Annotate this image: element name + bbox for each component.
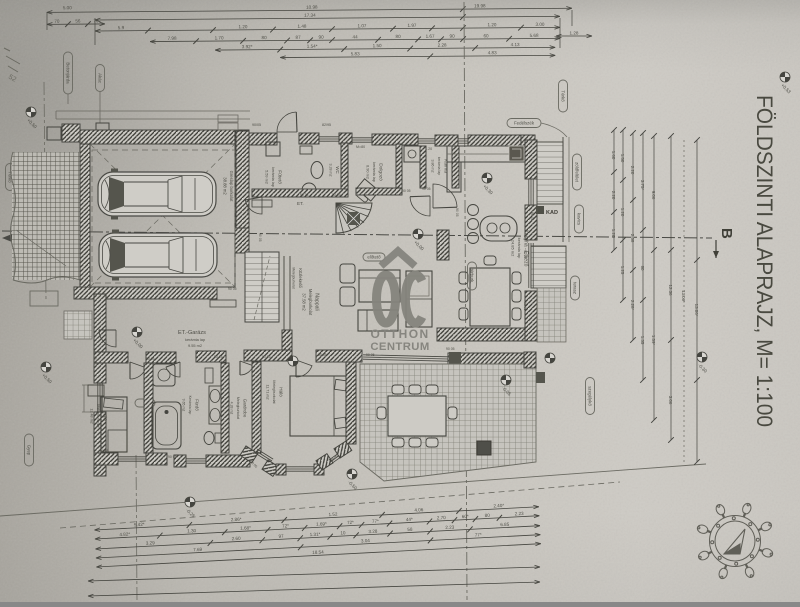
svg-text:72*: 72* xyxy=(347,520,354,525)
svg-text:1.20: 1.20 xyxy=(611,229,616,238)
svg-text:17.34: 17.34 xyxy=(304,13,316,18)
svg-text:ET.-Garázs: ET.-Garázs xyxy=(178,330,206,336)
svg-text:ET.: ET. xyxy=(297,201,304,206)
svg-text:2.28: 2.28 xyxy=(438,43,447,48)
svg-text:Kamra: Kamra xyxy=(443,159,448,173)
svg-text:1.50: 1.50 xyxy=(373,43,382,48)
svg-text:60: 60 xyxy=(483,33,489,38)
svg-text:terasz: terasz xyxy=(572,282,577,294)
svg-text:M=80: M=80 xyxy=(356,145,365,149)
svg-text:9.55 m2: 9.55 m2 xyxy=(188,343,202,348)
svg-text:90 05: 90 05 xyxy=(455,208,459,217)
svg-text:3.06: 3.06 xyxy=(668,396,673,405)
svg-text:3.92*: 3.92* xyxy=(242,44,253,49)
svg-text:90 05: 90 05 xyxy=(446,347,455,351)
svg-text:97: 97 xyxy=(278,534,284,539)
svg-text:2.60: 2.60 xyxy=(232,536,242,541)
svg-text:Melegburkolat: Melegburkolat xyxy=(308,289,313,316)
svg-text:90 05: 90 05 xyxy=(214,355,223,359)
svg-text:9.65 m2: 9.65 m2 xyxy=(181,399,185,412)
svg-text:90 05: 90 05 xyxy=(402,189,411,193)
svg-text:4.83: 4.83 xyxy=(488,50,497,55)
svg-text:87: 87 xyxy=(295,35,301,40)
svg-text:Betonjárda: Betonjárda xyxy=(65,62,70,84)
svg-text:kerámia lap: kerámia lap xyxy=(437,157,441,176)
svg-text:5.42*: 5.42* xyxy=(134,522,145,528)
svg-text:13.06*: 13.06* xyxy=(694,304,699,317)
svg-text:90: 90 xyxy=(449,34,455,39)
svg-text:10: 10 xyxy=(340,530,346,535)
svg-text:1.50: 1.50 xyxy=(620,154,625,163)
svg-text:1.52: 1.52 xyxy=(328,512,338,517)
svg-text:kerámia lap: kerámia lap xyxy=(185,337,205,342)
svg-text:5.83: 5.83 xyxy=(351,51,360,56)
svg-text:WC: WC xyxy=(335,166,340,173)
svg-text:3.86 m2: 3.86 m2 xyxy=(430,160,434,173)
svg-text:Dolgozó: Dolgozó xyxy=(377,163,383,181)
svg-text:Fürdő: Fürdő xyxy=(194,399,199,411)
svg-text:4.82*: 4.82* xyxy=(119,532,130,538)
svg-text:Akác: Akác xyxy=(97,73,102,84)
svg-text:7.98: 7.98 xyxy=(168,36,177,41)
svg-text:2.40*: 2.40* xyxy=(493,503,504,509)
svg-text:77*: 77* xyxy=(372,519,379,524)
svg-text:FÖLDSZINTI ALAPRAJZ, M= 1:100: FÖLDSZINTI ALAPRAJZ, M= 1:100 xyxy=(752,95,777,427)
svg-text:90: 90 xyxy=(318,35,324,40)
svg-text:18.54: 18.54 xyxy=(312,549,324,555)
svg-text:1.48: 1.48 xyxy=(297,24,306,29)
svg-text:90 05: 90 05 xyxy=(318,353,327,357)
svg-text:5.59 m2: 5.59 m2 xyxy=(264,170,268,184)
svg-text:zöldfelület: zöldfelület xyxy=(574,162,579,183)
svg-text:1.28: 1.28 xyxy=(570,30,579,35)
svg-text:90 05: 90 05 xyxy=(422,187,431,191)
svg-text:3.75*: 3.75* xyxy=(640,180,645,191)
svg-text:90 05: 90 05 xyxy=(100,449,109,453)
svg-text:12.36: 12.36 xyxy=(668,285,673,297)
svg-text:13.06*: 13.06* xyxy=(681,290,686,303)
svg-text:1.68*: 1.68* xyxy=(240,525,251,531)
svg-text:44*: 44* xyxy=(406,517,413,522)
svg-text:24.85 m2: 24.85 m2 xyxy=(510,240,515,257)
svg-text:3.04: 3.04 xyxy=(361,538,371,543)
svg-text:90 05: 90 05 xyxy=(523,302,527,311)
svg-text:3.29: 3.29 xyxy=(146,540,156,545)
svg-text:2.28*: 2.28* xyxy=(630,300,635,311)
svg-text:4.28 m2: 4.28 m2 xyxy=(229,402,233,415)
svg-text:Kerámia lap: Kerámia lap xyxy=(188,396,192,415)
svg-text:Térkő: Térkő xyxy=(560,90,565,102)
svg-text:44: 44 xyxy=(352,34,358,39)
svg-text:90 05: 90 05 xyxy=(228,287,237,291)
svg-text:3.28: 3.28 xyxy=(368,529,378,534)
svg-text:3.00: 3.00 xyxy=(535,22,544,27)
svg-text:előtető: előtető xyxy=(367,255,381,260)
svg-text:2.20: 2.20 xyxy=(611,191,616,200)
svg-text:1.54*: 1.54* xyxy=(307,44,318,49)
svg-text:Nappali: Nappali xyxy=(313,293,319,311)
svg-text:Konyha - Étkező: Konyha - Étkező xyxy=(522,230,529,267)
svg-text:6.85: 6.85 xyxy=(500,522,510,527)
svg-text:1.59*: 1.59* xyxy=(651,335,656,346)
svg-text:kerámia lap: kerámia lap xyxy=(517,238,522,259)
svg-text:1.20: 1.20 xyxy=(238,24,247,29)
svg-text:2.70: 2.70 xyxy=(437,515,447,520)
svg-text:4.06: 4.06 xyxy=(414,507,424,512)
svg-text:kavics: kavics xyxy=(576,213,581,226)
svg-text:10.98: 10.98 xyxy=(306,5,318,10)
svg-text:Háló: Háló xyxy=(102,411,107,421)
svg-text:70: 70 xyxy=(54,19,60,24)
svg-text:2.23: 2.23 xyxy=(445,525,455,530)
svg-text:1.20: 1.20 xyxy=(487,22,496,27)
svg-text:90 05: 90 05 xyxy=(530,212,534,221)
svg-text:9.06: 9.06 xyxy=(651,191,656,200)
svg-text:58: 58 xyxy=(407,527,413,532)
svg-text:2.38: 2.38 xyxy=(630,234,635,243)
svg-text:38.88 m2: 38.88 m2 xyxy=(222,177,227,195)
svg-text:37.58 m2: 37.58 m2 xyxy=(301,293,306,311)
svg-text:60*: 60* xyxy=(462,514,469,519)
svg-text:90/05: 90/05 xyxy=(252,123,261,127)
svg-text:5.68: 5.68 xyxy=(530,33,539,38)
svg-text:5.9: 5.9 xyxy=(118,25,125,30)
svg-text:térburk.: térburk. xyxy=(469,269,474,284)
svg-text:1.07: 1.07 xyxy=(357,23,366,28)
svg-text:13.48 m2: 13.48 m2 xyxy=(89,408,93,423)
svg-text:1.97: 1.97 xyxy=(407,23,416,28)
svg-text:80: 80 xyxy=(395,34,401,39)
svg-text:2.20: 2.20 xyxy=(630,166,635,175)
svg-text:1.25: 1.25 xyxy=(620,266,625,275)
svg-text:1.67: 1.67 xyxy=(426,34,435,39)
svg-text:3.28 m2: 3.28 m2 xyxy=(329,164,333,177)
svg-text:Közlekedő: Közlekedő xyxy=(298,268,303,288)
svg-text:8.90 m2: 8.90 m2 xyxy=(365,165,369,179)
svg-text:90 05: 90 05 xyxy=(93,356,97,365)
svg-text:Greslap burkolat: Greslap burkolat xyxy=(229,171,234,203)
svg-text:1.60: 1.60 xyxy=(611,151,616,160)
svg-text:Gardrobe: Gardrobe xyxy=(242,399,247,418)
svg-text:1.35: 1.35 xyxy=(640,336,645,345)
svg-text:80: 80 xyxy=(261,35,267,40)
svg-text:90 05: 90 05 xyxy=(300,193,309,197)
svg-text:2.86*: 2.86* xyxy=(231,517,242,523)
svg-text:90 05: 90 05 xyxy=(168,455,177,459)
svg-text:77*: 77* xyxy=(475,532,482,537)
svg-text:80: 80 xyxy=(485,513,491,518)
svg-text:kerámia lap: kerámia lap xyxy=(271,167,275,187)
svg-text:90 05: 90 05 xyxy=(258,233,262,242)
svg-text:Gyep: Gyep xyxy=(26,445,31,456)
svg-text:OTTHON: OTTHON xyxy=(370,327,429,341)
svg-text:kerámia lap: kerámia lap xyxy=(372,162,376,182)
svg-text:KAD: KAD xyxy=(546,210,558,216)
svg-text:5.00: 5.00 xyxy=(63,5,72,10)
svg-text:90 05: 90 05 xyxy=(366,353,375,357)
svg-text:11.71 m2: 11.71 m2 xyxy=(265,384,269,399)
svg-text:90 05: 90 05 xyxy=(332,193,341,197)
svg-text:90 05: 90 05 xyxy=(523,250,527,259)
svg-text:90 05: 90 05 xyxy=(262,355,271,359)
svg-text:Háló: Háló xyxy=(278,387,283,397)
svg-text:72*: 72* xyxy=(282,523,289,528)
svg-text:7.69: 7.69 xyxy=(193,547,203,552)
svg-text:90 05: 90 05 xyxy=(246,206,250,215)
svg-text:19.98: 19.98 xyxy=(474,3,486,8)
svg-text:Melegburkolat: Melegburkolat xyxy=(272,380,276,403)
svg-text:1.30: 1.30 xyxy=(187,528,197,533)
svg-text:2.23: 2.23 xyxy=(515,511,525,516)
svg-text:82/95: 82/95 xyxy=(322,123,331,127)
svg-text:Fűtető: Fűtető xyxy=(276,170,282,184)
svg-text:4.13: 4.13 xyxy=(511,42,520,47)
svg-text:90 05: 90 05 xyxy=(146,357,155,361)
svg-text:1.70: 1.70 xyxy=(215,35,224,40)
svg-text:CENTRUM: CENTRUM xyxy=(370,341,429,353)
svg-text:Fedélszék: Fedélszék xyxy=(514,121,535,126)
svg-text:1.20: 1.20 xyxy=(620,208,625,217)
svg-text:Melegburkolat: Melegburkolat xyxy=(292,267,296,288)
svg-text:Melegburkolat: Melegburkolat xyxy=(236,397,240,419)
svg-text:B: B xyxy=(718,228,735,239)
svg-text:80: 80 xyxy=(640,266,645,271)
svg-text:1.69*: 1.69* xyxy=(316,521,327,527)
svg-text:szegélykő: szegélykő xyxy=(587,386,592,406)
svg-text:76: 76 xyxy=(93,18,99,23)
svg-text:Melegburkolat: Melegburkolat xyxy=(96,404,100,427)
svg-text:56: 56 xyxy=(75,19,81,24)
svg-text:1.31*: 1.31* xyxy=(310,532,321,538)
